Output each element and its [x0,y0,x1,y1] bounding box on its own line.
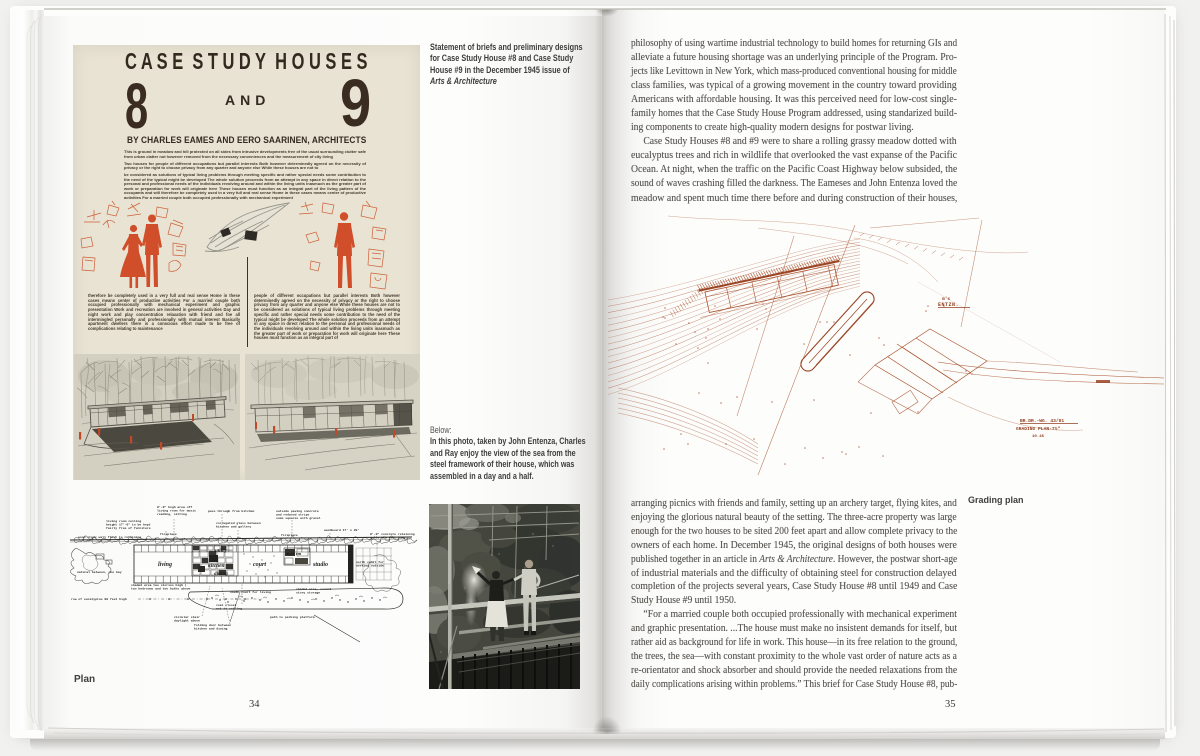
svg-text:fireplace: fireplace [281,533,298,537]
svg-text:living room ceilingheight 17’-: living room ceilingheight 17’-0" to be k… [106,519,151,530]
svg-text:corrugated glass betweenkitche: corrugated glass betweenkitchen and gall… [216,521,261,529]
svg-text:natural between, one bay: natural between, one bay [77,570,122,574]
svg-text:studio: studio [312,562,328,568]
svg-text:pass through from kitchen: pass through from kitchen [208,509,255,513]
svg-text:washboard 17’ x 20’: washboard 17’ x 20’ [324,528,359,532]
svg-text:coat closetnot to ceiling: coat closetnot to ceiling [216,603,242,611]
svg-text:north court forworking outside: north court forworking outside [356,560,384,568]
svg-text:utility: utility [215,549,228,554]
svg-text:fireplace: fireplace [160,532,177,536]
svg-text:row of eucalyptus 90 feet high: row of eucalyptus 90 feet high [71,597,127,601]
svg-text:8’-0" concrete retainingwalls: 8’-0" concrete retainingwalls 170 feet l… [370,532,415,540]
svg-text:kitchen: kitchen [208,563,224,569]
svg-text:court: court [253,562,266,568]
svg-text:dark rm: dark rm [286,551,302,556]
svg-text:outside paving concreteand red: outside paving concreteand redwood strip… [276,509,321,520]
svg-text:dining: dining [214,571,228,577]
svg-text:folding door betweenkitchen an: folding door betweenkitchen and dining [194,623,231,631]
svg-text:shaded area two stories high |: shaded area two stories high |two bedroo… [131,583,191,591]
svg-text:path to parking platform: path to parking platform [270,615,315,619]
svg-text:circular stairdaylight above: circular stairdaylight above [174,615,200,623]
svg-text:GRADING PLAN-7½": GRADING PLAN-7½" [1016,426,1060,432]
svg-text:living: living [158,562,172,568]
svg-text:BR.DR.-WG. 43/01: BR.DR.-WG. 43/01 [1020,418,1064,424]
svg-text:shaded area, secondstory stora: shaded area, secondstory storage [296,587,331,595]
svg-text:10.45: 10.45 [1032,435,1045,439]
svg-text:8’-0" high area offliving room: 8’-0" high area offliving room for music… [157,505,196,516]
svg-text:wood study wall flush to retai: wood study wall flush to retaining [78,535,141,539]
